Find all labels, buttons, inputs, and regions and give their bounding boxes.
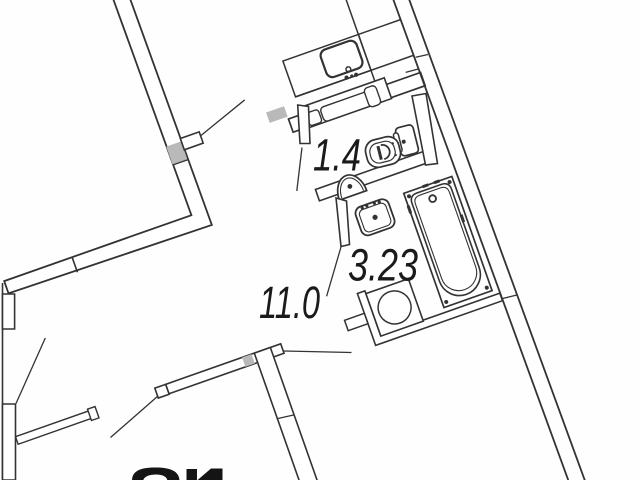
svg-text:1.4: 1.4 <box>313 130 361 181</box>
svg-text:11.0: 11.0 <box>259 277 320 328</box>
svg-text:3.23: 3.23 <box>348 240 418 291</box>
